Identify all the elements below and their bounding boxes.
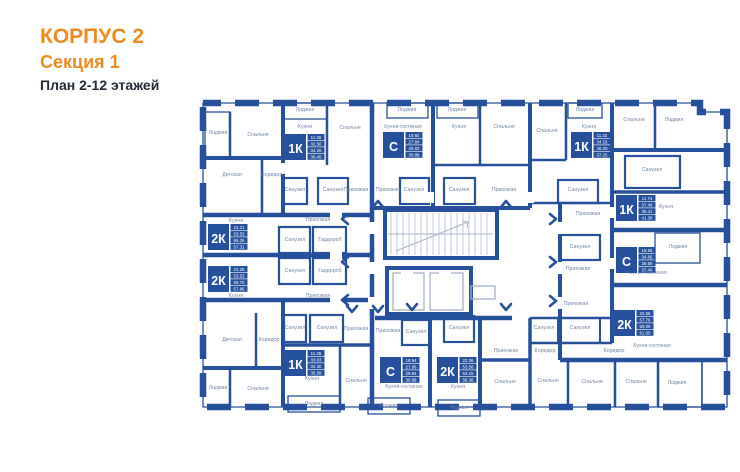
room-label: Гардероб bbox=[318, 237, 341, 243]
apartment-badge[interactable]: 2К22.2653.5355.7057.86 bbox=[208, 266, 248, 292]
apartment-area-value: 11.74 bbox=[642, 196, 653, 201]
room-label: Кухня bbox=[229, 218, 243, 224]
room-label: Спальня bbox=[339, 125, 360, 131]
room-label: Кухня bbox=[298, 124, 312, 130]
entrance-arrow-icon bbox=[550, 296, 556, 306]
room-label: Лоджия bbox=[450, 405, 469, 411]
room-label: Спальня bbox=[494, 379, 515, 385]
apartment-badge[interactable]: 1К11.3632.5034.2636.45 bbox=[285, 134, 325, 160]
apartment-area-value: 29.84 bbox=[406, 371, 418, 376]
room-label: Санузел bbox=[568, 187, 589, 193]
room-label: Прихожая bbox=[306, 217, 331, 223]
apartment-area-value: 32.50 bbox=[311, 141, 323, 146]
apartment-badge[interactable]: С18.5634.6636.6537.40 bbox=[616, 247, 656, 273]
apartment-area-value: 57.76 bbox=[640, 317, 652, 322]
apartment-area-value: 56.36 bbox=[463, 378, 475, 383]
room-label: Кухня bbox=[659, 204, 673, 210]
room-label: Коридор bbox=[535, 348, 556, 354]
section-title: Секция 1 bbox=[40, 50, 159, 74]
room-label: Кухня-гостиная bbox=[384, 124, 422, 130]
apartment-badge[interactable]: С18.9427.8629.8430.88 bbox=[380, 357, 420, 383]
entrance-arrow-icon bbox=[550, 257, 556, 267]
entrance-arrow-icon bbox=[550, 214, 556, 224]
room-label: Кухня-гостиная bbox=[385, 384, 423, 390]
apartment-area-value: 34.30 bbox=[311, 364, 323, 369]
room-label: Прихожая bbox=[576, 211, 601, 217]
floor-plan-page: КОРПУС 2 Секция 1 План 2-12 этажей Лоджи… bbox=[0, 0, 740, 472]
entrance-arrow-icon bbox=[373, 306, 383, 312]
room-label: Кухня bbox=[451, 384, 465, 390]
apartment-area-value: 11.36 bbox=[311, 351, 322, 356]
room-label: Санузел bbox=[404, 187, 425, 193]
apartment-area-value: 37.25 bbox=[597, 153, 609, 158]
room-label: Прихожая bbox=[492, 187, 517, 193]
room-label: Лоджия bbox=[576, 107, 595, 113]
apartment-area-value: 22.26 bbox=[234, 267, 246, 272]
apartment-type-label: 2К bbox=[440, 365, 455, 379]
room-label: Прихожая bbox=[344, 326, 369, 332]
room-label: Гардероб bbox=[318, 268, 341, 274]
room-label: Спальня bbox=[623, 117, 644, 123]
apartment-area-value: 22.36 bbox=[463, 358, 475, 363]
apartment-area-value: 57.31 bbox=[234, 245, 246, 250]
staircase bbox=[385, 210, 497, 258]
elevator-shaft bbox=[387, 268, 495, 314]
apartment-type-label: 2К bbox=[211, 232, 226, 246]
room-label: Детская bbox=[222, 172, 242, 178]
room-label: Лоджия bbox=[668, 380, 687, 386]
room-label: Спальня bbox=[247, 132, 268, 138]
apartment-area-value: 34.66 bbox=[642, 254, 654, 259]
apartment-badge[interactable]: 1К11.3234.1536.2037.25 bbox=[571, 132, 611, 158]
room-label: Спальня bbox=[625, 379, 646, 385]
room-label: Санузел bbox=[317, 325, 338, 331]
apartment-area-value: 27.86 bbox=[406, 364, 418, 369]
apartment-area-value: 53.53 bbox=[234, 273, 246, 278]
room-label: Прихожая bbox=[566, 266, 591, 272]
apartment-badge[interactable]: 1К11.7437.4639.4141.36 bbox=[616, 195, 656, 221]
room-label: Лоджия bbox=[448, 107, 467, 113]
room-label: Лоджия bbox=[398, 107, 417, 113]
room-label: Прихожая bbox=[344, 187, 369, 193]
room-label: Кухня bbox=[452, 124, 466, 130]
room-label: Санузел bbox=[406, 329, 427, 335]
room-label: Санузел bbox=[449, 187, 470, 193]
room-label: Санузел bbox=[534, 325, 555, 331]
apartment-area-value: 61.00 bbox=[640, 331, 652, 336]
apartment-area-value: 34.26 bbox=[311, 148, 323, 153]
apartment-area-value: 22.21 bbox=[234, 225, 246, 230]
apartment-area-value: 36.45 bbox=[311, 155, 323, 160]
apartment-area-value: 18.92 bbox=[409, 133, 421, 138]
apartment-area-value: 57.86 bbox=[234, 287, 246, 292]
apartment-area-value: 41.36 bbox=[642, 216, 654, 221]
building-title: КОРПУС 2 bbox=[40, 24, 159, 50]
room-label: Спальня bbox=[247, 386, 268, 392]
room-label: Прихожая bbox=[376, 328, 401, 334]
apartment-area-value: 36.65 bbox=[642, 261, 654, 266]
apartment-area-value: 37.46 bbox=[642, 202, 654, 207]
room-label: Санузел bbox=[570, 244, 591, 250]
apartment-type-label: 1К bbox=[619, 203, 634, 217]
floors-subtitle: План 2-12 этажей bbox=[40, 75, 159, 96]
apartment-area-value: 37.40 bbox=[642, 268, 654, 273]
room-label: Лоджия bbox=[209, 130, 228, 136]
room-label: Лоджия bbox=[209, 385, 228, 391]
room-label: Кухня bbox=[582, 124, 596, 130]
apartment-area-value: 35.58 bbox=[311, 371, 323, 376]
room-label: Санузел bbox=[285, 268, 306, 274]
entrance-arrow-icon bbox=[501, 304, 511, 310]
apartment-area-value: 36.20 bbox=[597, 146, 609, 151]
room-label: Лоджия bbox=[296, 107, 315, 113]
apartment-type-label: 2К bbox=[617, 318, 632, 332]
room-label: Лоджия bbox=[380, 403, 399, 409]
room-label: Спальня bbox=[345, 378, 366, 384]
room-label: Коридор bbox=[259, 337, 280, 343]
apartment-type-label: С bbox=[389, 140, 398, 154]
room-label: Санузел bbox=[285, 237, 306, 243]
room-label: Спальня bbox=[536, 128, 557, 134]
apartment-area-value: 55.70 bbox=[234, 280, 246, 285]
room-label: Спальня bbox=[493, 124, 514, 130]
apartment-area-value: 59.05 bbox=[640, 324, 652, 329]
entrance-arrow-icon bbox=[347, 306, 357, 312]
apartment-area-value: 54.15 bbox=[463, 371, 475, 376]
room-label: Санузел bbox=[323, 187, 344, 193]
apartment-area-value: 11.32 bbox=[597, 133, 608, 138]
apartment-area-value: 55.26 bbox=[234, 238, 246, 243]
room-label: Санузел bbox=[285, 325, 306, 331]
room-label: Кухня bbox=[305, 376, 319, 382]
room-label: Лоджия bbox=[305, 401, 324, 407]
apartment-area-value: 39.41 bbox=[642, 209, 654, 214]
apartment-area-value: 18.56 bbox=[642, 248, 654, 253]
room-label: Прихожая bbox=[564, 301, 589, 307]
apartment-area-value: 30.88 bbox=[406, 378, 418, 383]
apartment-area-value: 11.36 bbox=[311, 135, 322, 140]
room-label: Прихожая bbox=[494, 348, 519, 354]
room-label: Санузел bbox=[449, 325, 470, 331]
apartment-badge[interactable]: 2К22.5657.7659.0561.00 bbox=[614, 310, 654, 336]
apartment-area-value: 29.83 bbox=[409, 146, 421, 151]
room-label: Лоджия bbox=[669, 244, 688, 250]
room-label: Спальня bbox=[581, 379, 602, 385]
room-label: Кухня bbox=[229, 293, 243, 299]
apartment-type-label: С bbox=[622, 255, 631, 269]
room-label: Санузел bbox=[570, 325, 591, 331]
room-label: Коридор bbox=[604, 348, 625, 354]
room-label: Кухня-гостиная bbox=[633, 343, 671, 349]
apartment-type-label: 1К bbox=[288, 358, 303, 372]
apartment-area-value: 18.94 bbox=[406, 358, 418, 363]
room-label: Санузел bbox=[285, 187, 306, 193]
room-label: Спальня bbox=[537, 378, 558, 384]
apartment-area-value: 22.56 bbox=[640, 311, 652, 316]
apartment-type-label: 1К bbox=[288, 142, 303, 156]
room-label: Лоджия bbox=[665, 117, 684, 123]
plan-header: КОРПУС 2 Секция 1 План 2-12 этажей bbox=[40, 24, 159, 96]
room-label: Прихожая bbox=[306, 293, 331, 299]
apartment-badge[interactable]: С18.9227.8429.8330.88 bbox=[383, 132, 423, 158]
apartment-area-value: 27.84 bbox=[409, 139, 421, 144]
apartment-badge[interactable]: 2К22.2153.5355.2657.31 bbox=[208, 224, 248, 250]
room-label: Санузел bbox=[642, 167, 663, 173]
room-label: Прихожая bbox=[376, 187, 401, 193]
apartment-type-label: 1К bbox=[574, 140, 589, 154]
room-label: Коридор bbox=[262, 172, 283, 178]
room-label: Детская bbox=[222, 337, 242, 343]
apartment-badge[interactable]: 1К11.3633.0334.3035.58 bbox=[285, 350, 325, 376]
apartment-area-value: 53.56 bbox=[463, 364, 475, 369]
apartment-badge[interactable]: 2К22.3653.5654.1556.36 bbox=[437, 357, 477, 383]
apartment-area-value: 34.15 bbox=[597, 139, 609, 144]
apartment-area-value: 53.53 bbox=[234, 231, 246, 236]
apartment-type-label: 2К bbox=[211, 274, 226, 288]
entrance-arrow-icon bbox=[407, 304, 417, 310]
apartment-type-label: С bbox=[386, 365, 395, 379]
apartment-area-value: 30.88 bbox=[409, 153, 421, 158]
apartment-area-value: 33.03 bbox=[311, 357, 323, 362]
